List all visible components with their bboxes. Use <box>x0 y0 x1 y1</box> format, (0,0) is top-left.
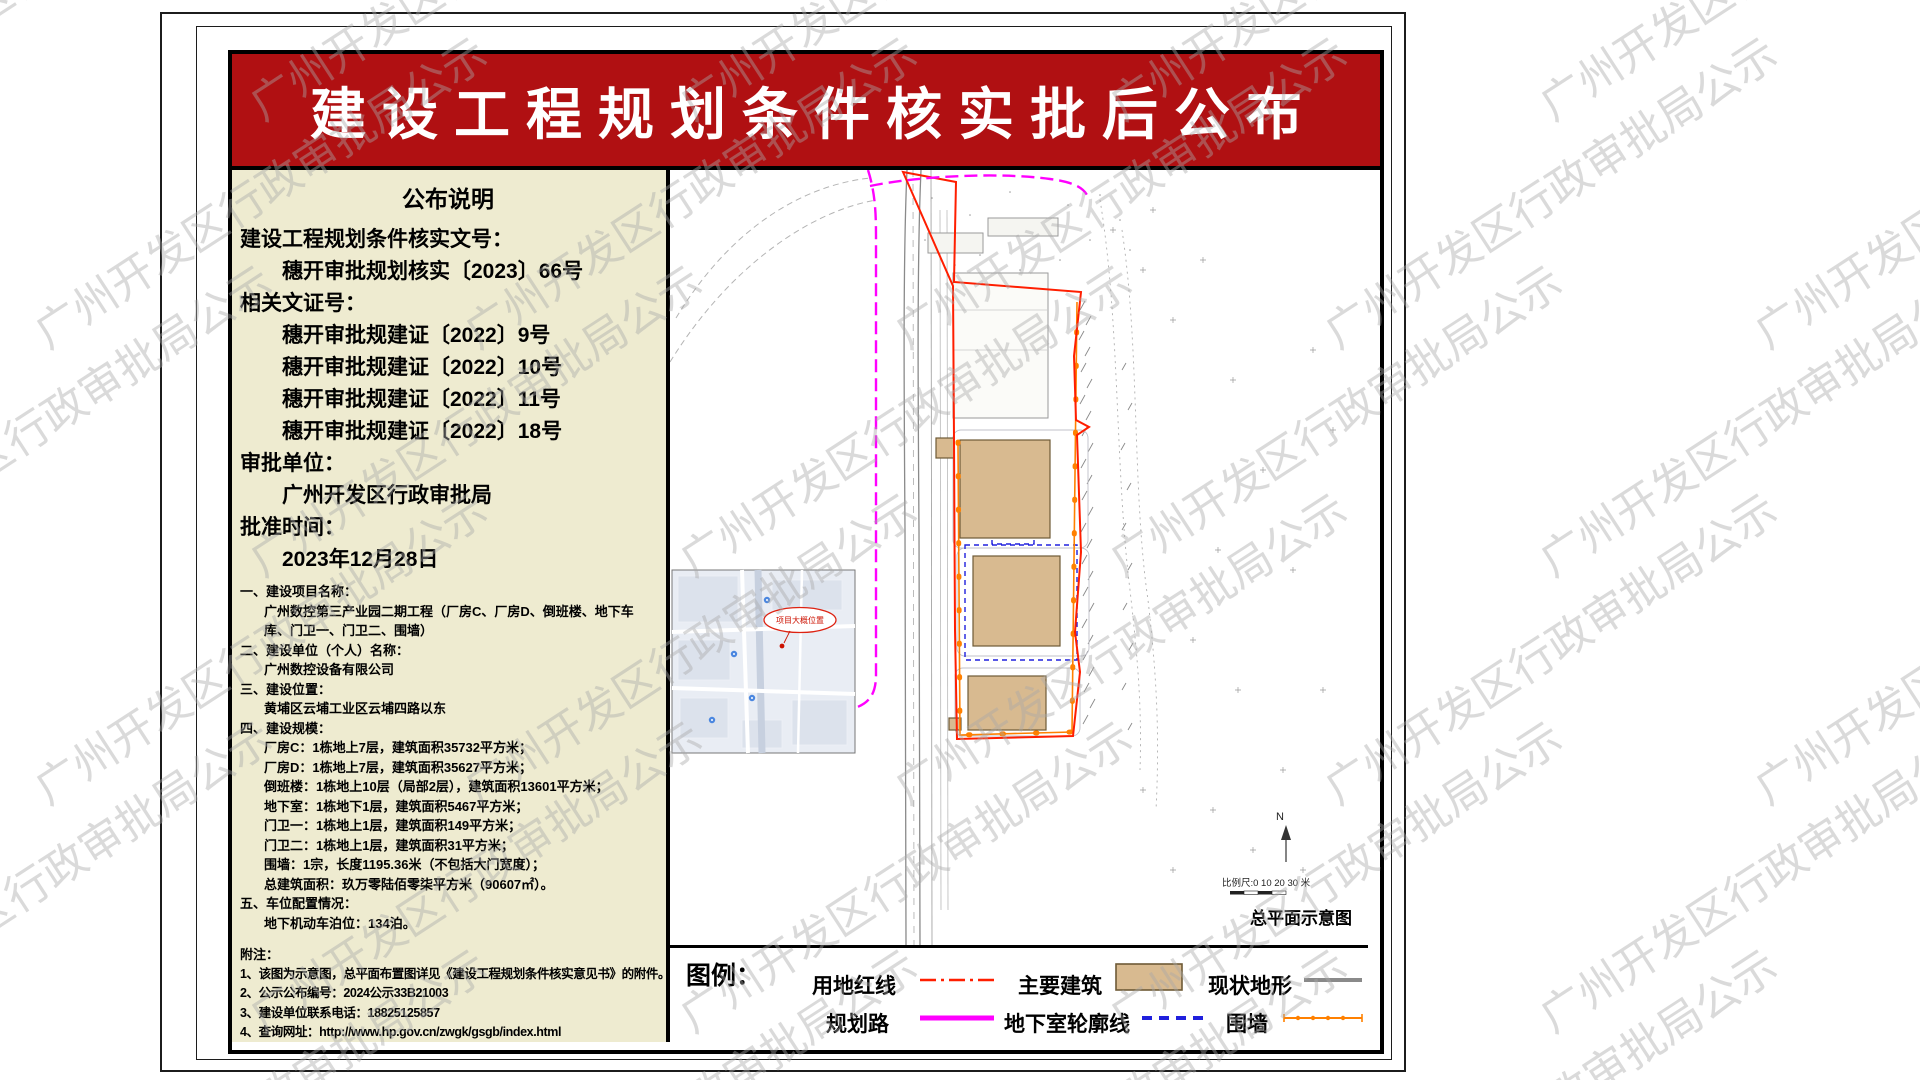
field-label: 审批单位： <box>240 448 656 480</box>
watermark-text: 广州开发区行政审批局公示 <box>1525 703 1920 1044</box>
announcement-board: 建设工程规划条件核实批后公布 公布说明 建设工程规划条件核实文号： 穗开审批规划… <box>228 50 1384 1054</box>
legend-swatch-redline <box>918 974 996 986</box>
plan-caption: 总平面示意图 <box>1250 904 1352 929</box>
field-value: 广州开发区行政审批局 <box>240 480 656 512</box>
section-line: 广州数控第三产业园二期工程（厂房C、厂房D、倒班楼、地下车库、门卫一、门卫二、围… <box>240 602 656 641</box>
note-line: 4、查询网址：http://www.hp.gov.cn/zwgk/gsgb/in… <box>240 1023 656 1043</box>
section-line: 地下室：1栋地下1层，建筑面积5467平方米； <box>240 797 656 817</box>
watermark-text: 广州开发区行政审批局公示 <box>1740 19 1920 360</box>
north-arrow: N <box>1276 811 1291 862</box>
document-numbers: 建设工程规划条件核实文号： 穗开审批规划核实〔2023〕66号 相关文证号： 穗… <box>240 224 656 576</box>
legend-swatch-underground <box>1140 1012 1206 1024</box>
panel-header: 公布说明 <box>240 180 656 214</box>
legend-swatch-planning-road <box>918 1012 996 1024</box>
project-details: 一、建设项目名称： 广州数控第三产业园二期工程（厂房C、厂房D、倒班楼、地下车库… <box>240 582 656 933</box>
title-banner: 建设工程规划条件核实批后公布 <box>232 54 1380 170</box>
legend-label-redline: 用地红线 <box>812 970 896 1000</box>
watermark-text: 广州开发区行政审批局公示 <box>1740 475 1920 816</box>
section-line: 黄埔区云埔工业区云埔四路以东 <box>240 699 656 719</box>
legend-title: 图例： <box>686 956 761 992</box>
legend-swatch-fence <box>1280 1010 1366 1026</box>
field-value: 穗开审批规建证〔2022〕11号 <box>240 384 656 416</box>
section-line: 总建筑面积：玖万零陆佰零柒平方米（90607㎡）。 <box>240 875 656 895</box>
section-label: 三、建设位置： <box>240 680 656 700</box>
section-line: 厂房D：1栋地上7层，建筑面积35627平方米； <box>240 758 656 778</box>
terrain-hatch <box>1079 301 1133 730</box>
section-label: 四、建设规模： <box>240 719 656 739</box>
survey-marks <box>1110 207 1336 873</box>
field-label: 批准时间： <box>240 512 656 544</box>
note-line: 1、该图为示意图，总平面布置图详见《建设工程规划条件核实意见书》的附件。 <box>240 965 656 985</box>
notes: 附注： 1、该图为示意图，总平面布置图详见《建设工程规划条件核实意见书》的附件。… <box>240 945 656 1043</box>
notes-label: 附注： <box>240 945 656 965</box>
svg-text:N: N <box>1276 811 1284 823</box>
page-title: 建设工程规划条件核实批后公布 <box>294 70 1318 151</box>
legend-label-underground: 地下室轮廓线 <box>1004 1008 1130 1038</box>
field-value: 穗开审批规建证〔2022〕10号 <box>240 352 656 384</box>
legend-label-main-building: 主要建筑 <box>1018 970 1102 1000</box>
note-line: 2、公示公布编号：2024公示33B21003 <box>240 984 656 1004</box>
legend-label-planning-road: 规划路 <box>826 1008 889 1038</box>
scale-bar: 比例尺:0 10 20 30 米 <box>1222 877 1311 895</box>
section-label: 五、车位配置情况： <box>240 894 656 914</box>
svg-text:项目大概位置: 项目大概位置 <box>776 615 824 625</box>
inset-location-map: 项目大概位置 <box>672 570 855 753</box>
site-plan-map: N 比例尺:0 10 20 30 米 <box>670 170 1368 945</box>
announcement-panel: 公布说明 建设工程规划条件核实文号： 穗开审批规划核实〔2023〕66号 相关文… <box>232 170 670 1042</box>
site-plan-svg: N 比例尺:0 10 20 30 米 <box>670 170 1368 945</box>
section-label: 一、建设项目名称： <box>240 582 656 602</box>
watermark-text: 广州开发区行政审批局公示 <box>1740 931 1920 1080</box>
field-label: 建设工程规划条件核实文号： <box>240 224 656 256</box>
legend-swatch-terrain <box>1302 974 1364 986</box>
field-value: 穗开审批规建证〔2022〕9号 <box>240 320 656 352</box>
section-line: 围墙：1宗，长度1195.36米（不包括大门宽度）； <box>240 855 656 875</box>
legend-label-terrain: 现状地形 <box>1208 970 1292 1000</box>
contour-lines <box>1100 200 1158 810</box>
road-arc-lines <box>670 178 876 362</box>
existing-road-lines <box>904 170 948 945</box>
watermark-text: 广州开发区行政审批局公示 <box>1525 247 1920 588</box>
section-label: 二、建设单位（个人）名称： <box>240 641 656 661</box>
legend-label-fence: 围墙 <box>1226 1008 1268 1038</box>
note-line: 3、建设单位联系电话：18825125857 <box>240 1004 656 1024</box>
field-value: 穗开审批规建证〔2022〕18号 <box>240 416 656 448</box>
section-line: 门卫二：1栋地上1层，建筑面积31平方米； <box>240 836 656 856</box>
legend: 图例： 用地红线 主要建筑 现状地形 规划路 <box>670 945 1368 1042</box>
section-line: 厂房C：1栋地上7层，建筑面积35732平方米； <box>240 738 656 758</box>
section-line: 门卫一：1栋地上1层，建筑面积149平方米； <box>240 816 656 836</box>
watermark-text: 广州开发区行政审批局公示 <box>1525 0 1920 133</box>
section-line: 广州数控设备有限公司 <box>240 660 656 680</box>
section-line: 倒班楼：1栋地上10层（局部2层），建筑面积13601平方米； <box>240 777 656 797</box>
field-value: 2023年12月28日 <box>240 544 656 576</box>
legend-swatch-main-building <box>1114 962 1186 994</box>
section-line: 地下机动车泊位：134泊。 <box>240 914 656 934</box>
page: 建设工程规划条件核实批后公布 公布说明 建设工程规划条件核实文号： 穗开审批规划… <box>0 0 1920 1080</box>
svg-text:比例尺:0 10 20 30 米: 比例尺:0 10 20 30 米 <box>1222 877 1311 889</box>
field-label: 相关文证号： <box>240 288 656 320</box>
field-value: 穗开审批规划核实〔2023〕66号 <box>240 256 656 288</box>
